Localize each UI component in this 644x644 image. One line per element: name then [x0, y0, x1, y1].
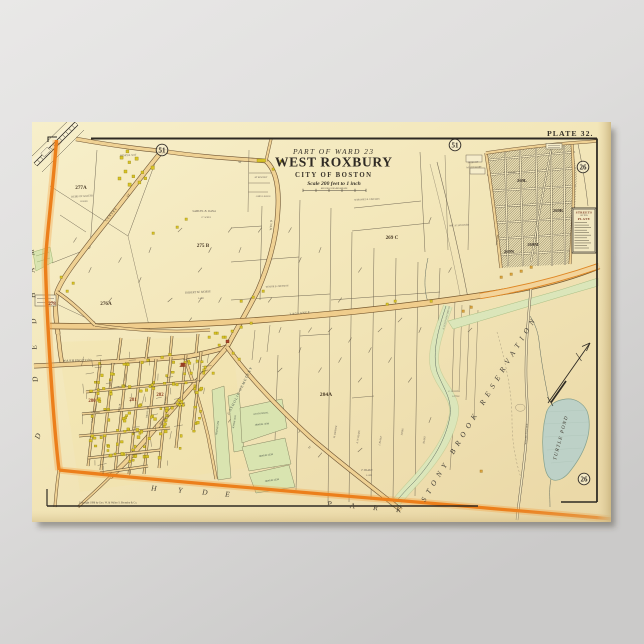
svg-text:D: D — [201, 487, 209, 496]
svg-text:269 C: 269 C — [386, 235, 399, 241]
svg-text:281: 281 — [129, 398, 137, 403]
svg-text:WEST ROXBURY: WEST ROXBURY — [275, 155, 393, 170]
svg-text:ST: ST — [238, 160, 242, 164]
svg-text:LITTLE: LITTLE — [451, 396, 460, 398]
svg-text:STREETS: STREETS — [576, 211, 592, 215]
svg-text:280: 280 — [88, 399, 96, 404]
svg-text:L. SOPHIA: L. SOPHIA — [448, 390, 460, 393]
svg-text:PLATE: PLATE — [578, 217, 590, 221]
svg-text:JAMES LAWLESS: JAMES LAWLESS — [256, 195, 271, 198]
svg-text:26: 26 — [580, 164, 588, 172]
svg-text:MT BENEDICT: MT BENEDICT — [254, 177, 269, 179]
svg-text:27 ACRES: 27 ACRES — [201, 216, 212, 219]
svg-text:284A: 284A — [320, 392, 332, 398]
svg-text:H: H — [150, 483, 158, 492]
svg-text:277A: 277A — [75, 185, 87, 191]
svg-text:A: A — [349, 501, 356, 510]
svg-text:283: 283 — [179, 364, 187, 369]
svg-text:BAKER: BAKER — [80, 200, 88, 203]
svg-text:E: E — [224, 489, 231, 498]
svg-text:269R: 269R — [553, 208, 564, 213]
svg-text:276A: 276A — [100, 301, 112, 307]
svg-text:275 B: 275 B — [197, 243, 210, 249]
svg-text:EAGLE: EAGLE — [508, 171, 517, 175]
svg-text:Copyright 1896 by Geo. W. & Wa: Copyright 1896 by Geo. W. & Walter S. Br… — [79, 502, 138, 505]
svg-text:269M: 269M — [527, 242, 539, 247]
svg-text:51: 51 — [452, 142, 460, 150]
svg-text:HEIRS OF: HEIRS OF — [467, 161, 479, 165]
svg-text:278: 278 — [48, 302, 56, 307]
svg-text:269L: 269L — [517, 178, 527, 183]
svg-text:SAMUEL B. DANA: SAMUEL B. DANA — [192, 209, 216, 213]
svg-text:400 200 0 200 400 600 800: 400 200 0 200 400 600 800 — [321, 187, 348, 190]
svg-text:282: 282 — [156, 393, 164, 398]
svg-text:P: P — [326, 499, 333, 508]
svg-text:PLATE 32.: PLATE 32. — [547, 129, 594, 138]
svg-text:F. BLAKE: F. BLAKE — [360, 469, 373, 472]
svg-text:26: 26 — [581, 476, 589, 484]
svg-text:LAND: LAND — [365, 474, 372, 477]
svg-text:269N: 269N — [504, 249, 515, 254]
svg-text:51: 51 — [159, 147, 167, 155]
svg-text:WELD: WELD — [269, 219, 274, 230]
svg-text:CITY OF BOSTON: CITY OF BOSTON — [295, 172, 373, 179]
svg-text:LAND: LAND — [197, 297, 204, 300]
